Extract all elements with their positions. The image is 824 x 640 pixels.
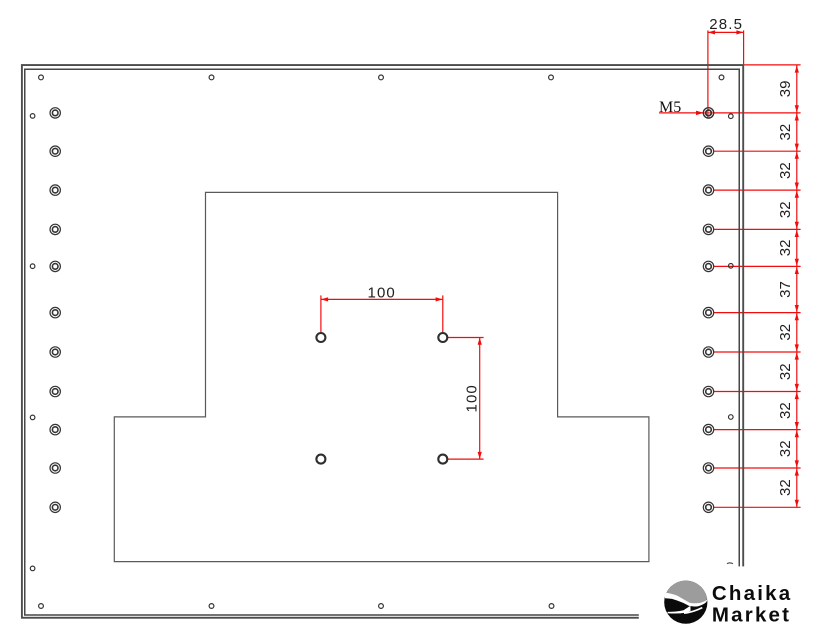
svg-text:100: 100 bbox=[368, 285, 396, 302]
svg-text:32: 32 bbox=[777, 440, 794, 457]
svg-text:Market: Market bbox=[712, 604, 791, 627]
svg-text:39: 39 bbox=[777, 81, 794, 98]
svg-text:32: 32 bbox=[777, 402, 794, 419]
svg-text:32: 32 bbox=[777, 124, 794, 141]
svg-text:32: 32 bbox=[777, 324, 794, 341]
svg-text:M5: M5 bbox=[659, 99, 681, 116]
svg-text:32: 32 bbox=[777, 201, 794, 218]
svg-text:Chaika: Chaika bbox=[712, 582, 792, 605]
svg-text:32: 32 bbox=[777, 479, 794, 496]
svg-text:32: 32 bbox=[777, 363, 794, 380]
svg-text:28.5: 28.5 bbox=[709, 16, 743, 33]
svg-text:32: 32 bbox=[777, 240, 794, 257]
svg-text:37: 37 bbox=[777, 281, 794, 298]
svg-text:32: 32 bbox=[777, 162, 794, 179]
svg-text:100: 100 bbox=[464, 384, 481, 412]
